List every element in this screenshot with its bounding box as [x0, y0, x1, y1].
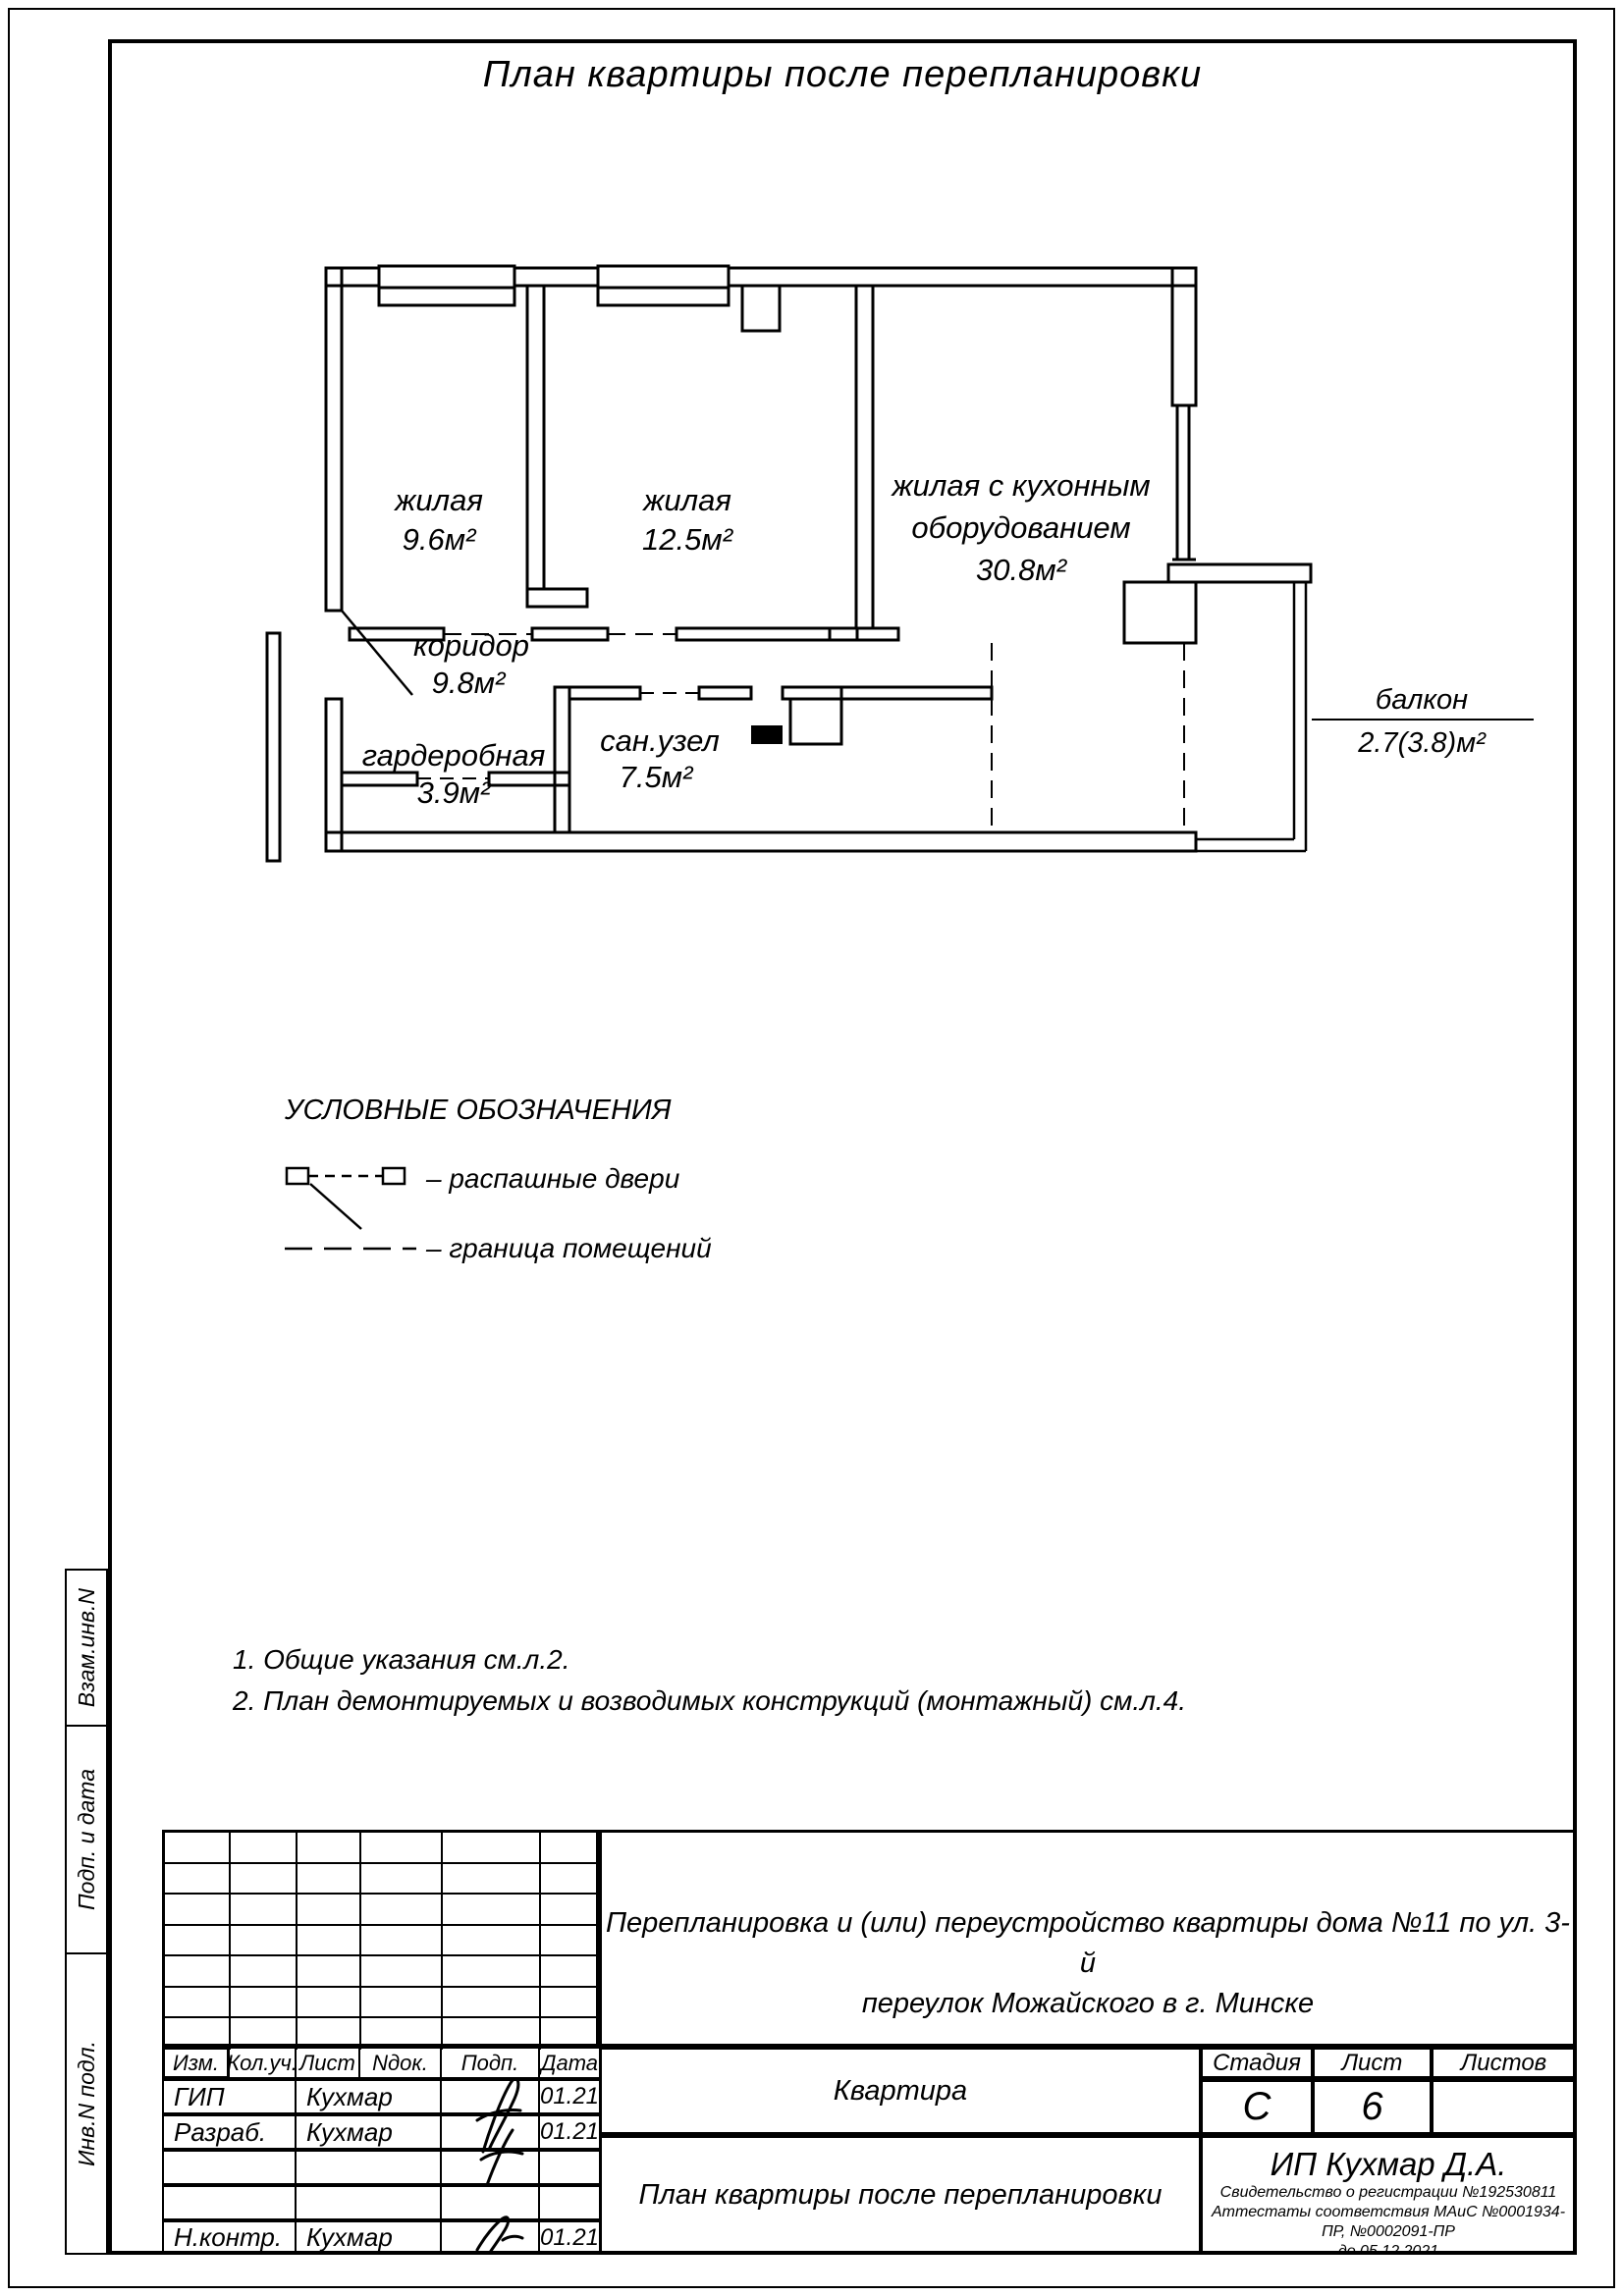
margin-attribute-column: Взам.инв.N Подп. и дата Инв.N подл. [65, 1569, 108, 2255]
row-role-empty1 [162, 2150, 297, 2185]
row-date-empty1 [538, 2150, 601, 2185]
company-cert-line1: Свидетельство о регистрации №192530811 [1220, 2183, 1557, 2203]
object-cell: Квартира [599, 2047, 1202, 2135]
company-cert-line2: Аттестаты соответствия МАиС №0001934-ПР,… [1203, 2203, 1574, 2242]
col-header-data: Дата [538, 2047, 601, 2079]
col-header-izm: Изм. [162, 2047, 230, 2079]
door-symbol-icon [287, 1168, 405, 1229]
row-date-nkontr: 01.21 [538, 2220, 601, 2255]
row-role-empty2 [162, 2185, 297, 2220]
drawing-title-cell: План квартиры после перепланировки [599, 2135, 1202, 2255]
sheets-header: Листов [1431, 2047, 1577, 2079]
margin-label-inv: Инв.N подл. [74, 2041, 100, 2166]
project-name-cell: Перепланировка и (или) переустройство кв… [599, 1830, 1577, 2047]
margin-cell-inv: Инв.N подл. [67, 1954, 106, 2253]
room-area-wardrobe: 3.9м² [417, 775, 492, 810]
room-label-balcony: балкон [1376, 684, 1468, 716]
room-label-kitchen-line2: оборудованием [911, 510, 1130, 545]
row-name-gip: Кухмар [295, 2079, 442, 2114]
row-name-empty2 [295, 2185, 442, 2220]
margin-label-podp: Подп. и дата [74, 1769, 100, 1910]
row-sign-empty2 [440, 2185, 540, 2220]
note-1: 1. Общие указания см.л.2. [233, 1644, 569, 1675]
row-date-gip: 01.21 [538, 2079, 601, 2114]
row-sign-gip [440, 2079, 540, 2114]
room-label-bathroom: сан.узел [600, 723, 720, 758]
row-role-razrab: Разраб. [162, 2114, 297, 2150]
company-name: ИП Кухмар Д.А. [1271, 2146, 1507, 2183]
vent-shaft-filled [751, 725, 783, 744]
room-area-balcony: 2.7(3.8)м² [1357, 727, 1487, 759]
company-cert-line3: до 05.12.2021 [1338, 2242, 1438, 2255]
room-label-living1: жилая [393, 483, 483, 517]
revision-grid [162, 1830, 599, 2047]
col-header-list: Лист [295, 2047, 360, 2079]
room-area-living2: 12.5м² [642, 522, 734, 557]
row-sign-nkontr [440, 2220, 540, 2255]
col-header-ndok: Nдок. [358, 2047, 442, 2079]
sheet-value: 6 [1312, 2079, 1433, 2135]
sheets-value [1431, 2079, 1577, 2135]
entrance-door [326, 611, 412, 699]
room-label-wardrobe: гардеробная [362, 738, 546, 773]
room-label-living2: жилая [641, 483, 731, 517]
legend-item-boundary: – граница помещений [425, 1233, 712, 1263]
room-area-corridor: 9.8м² [432, 666, 507, 700]
room-label-corridor: коридор [413, 628, 529, 663]
room-area-kitchen: 30.8м² [976, 553, 1068, 587]
legend-title: УСЛОВНЫЕ ОБОЗНАЧЕНИЯ [284, 1095, 672, 1126]
margin-cell-vzam: Взам.инв.N [67, 1571, 106, 1727]
note-2: 2. План демонтируемых и возводимых конст… [232, 1685, 1186, 1716]
row-name-razrab: Кухмар [295, 2114, 442, 2150]
row-role-nkontr: Н.контр. [162, 2220, 297, 2255]
row-date-razrab: 01.21 [538, 2114, 601, 2150]
stage-value: С [1200, 2079, 1314, 2135]
room-area-living1: 9.6м² [403, 522, 477, 557]
company-cell: ИП Кухмар Д.А. Свидетельство о регистрац… [1200, 2135, 1577, 2255]
room-area-bathroom: 7.5м² [620, 760, 694, 794]
row-date-empty2 [538, 2185, 601, 2220]
room-label-kitchen-line1: жилая с кухонным [890, 468, 1150, 503]
col-header-podp: Подп. [440, 2047, 540, 2079]
drawing-sheet: План квартиры после перепланировки [0, 0, 1623, 2296]
row-role-gip: ГИП [162, 2079, 297, 2114]
margin-label-vzam: Взам.инв.N [74, 1588, 100, 1707]
sheet-header: Лист [1312, 2047, 1433, 2079]
col-header-koluch: Кол.уч. [228, 2047, 297, 2079]
project-name-line2: переулок Можайского в г. Минске [862, 1984, 1314, 2024]
row-name-nkontr: Кухмар [295, 2220, 442, 2255]
stage-header: Стадия [1200, 2047, 1314, 2079]
project-name-line1: Перепланировка и (или) переустройство кв… [602, 1903, 1574, 1984]
row-sign-razrab [440, 2114, 540, 2150]
legend-item-doors: – распашные двери [425, 1163, 680, 1194]
balcony-outline [1196, 582, 1306, 851]
row-name-empty1 [295, 2150, 442, 2185]
row-sign-empty1 [440, 2150, 540, 2185]
margin-cell-podp: Подп. и дата [67, 1727, 106, 1954]
